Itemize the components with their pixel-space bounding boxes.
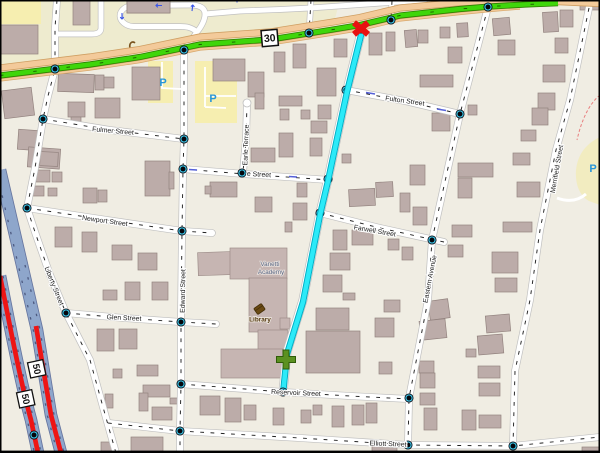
svg-text:Earle Terrace: Earle Terrace	[242, 124, 250, 165]
svg-text:Vanetti: Vanetti	[260, 261, 279, 268]
svg-text:30: 30	[263, 32, 276, 45]
svg-text:P: P	[209, 93, 216, 105]
svg-text:P: P	[159, 77, 166, 89]
svg-text:Academy: Academy	[258, 269, 285, 276]
svg-text:Library: Library	[249, 317, 271, 324]
svg-text:Elliott Street: Elliott Street	[369, 440, 406, 448]
svg-text:50: 50	[19, 393, 32, 406]
svg-text:P: P	[589, 163, 596, 175]
svg-text:50: 50	[30, 363, 43, 376]
svg-text:Edward Street: Edward Street	[180, 269, 188, 313]
svg-text:e Street: e Street	[247, 171, 272, 179]
